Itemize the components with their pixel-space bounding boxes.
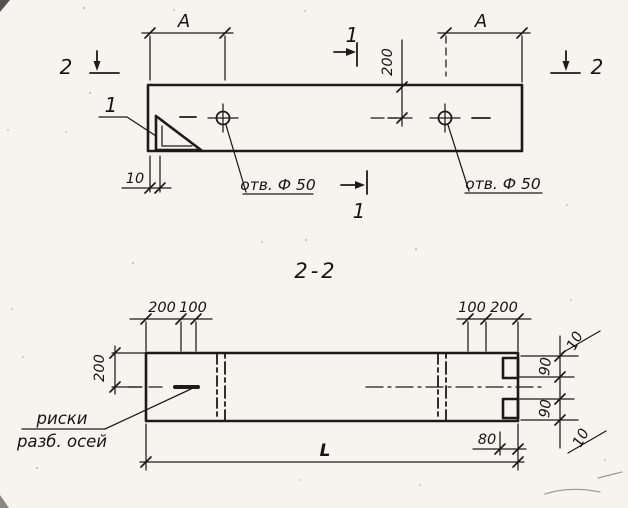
hole-diameter-label: отв. Ф 50 bbox=[240, 176, 316, 194]
dim-100-label: 100 bbox=[458, 300, 486, 316]
detail-callout-label: 1 bbox=[105, 93, 118, 117]
hole-diameter-label: отв. Ф 50 bbox=[465, 175, 541, 193]
dim-80-label: 80 bbox=[478, 432, 496, 448]
dim-200-label: 200 bbox=[490, 300, 518, 316]
dim-L-label: L bbox=[320, 441, 331, 461]
dim-a-left-label: A bbox=[177, 11, 190, 32]
section-2-left-label: 2 bbox=[60, 55, 73, 79]
dim-90-top-label: 90 bbox=[537, 357, 555, 377]
dim-200-label: 200 bbox=[380, 48, 396, 76]
axes-note-line1: риски bbox=[36, 409, 88, 428]
technical-drawing: A A 200 10 1 bbox=[0, 0, 628, 508]
dim-a-right-label: A bbox=[474, 11, 487, 32]
drawing-sheet: A A 200 10 1 bbox=[0, 0, 628, 508]
axes-note-line2: разб. осей bbox=[16, 432, 107, 451]
section-title: 2-2 bbox=[294, 259, 337, 283]
dim-100-label: 100 bbox=[179, 300, 207, 316]
dim-90-bottom-label: 90 bbox=[537, 399, 555, 419]
dim-200-label: 200 bbox=[148, 300, 176, 316]
dim-10-label: 10 bbox=[126, 171, 144, 187]
section-1-bottom-label: 1 bbox=[353, 199, 366, 223]
dim-200-label: 200 bbox=[92, 354, 108, 382]
section-2-right-label: 2 bbox=[591, 55, 604, 79]
